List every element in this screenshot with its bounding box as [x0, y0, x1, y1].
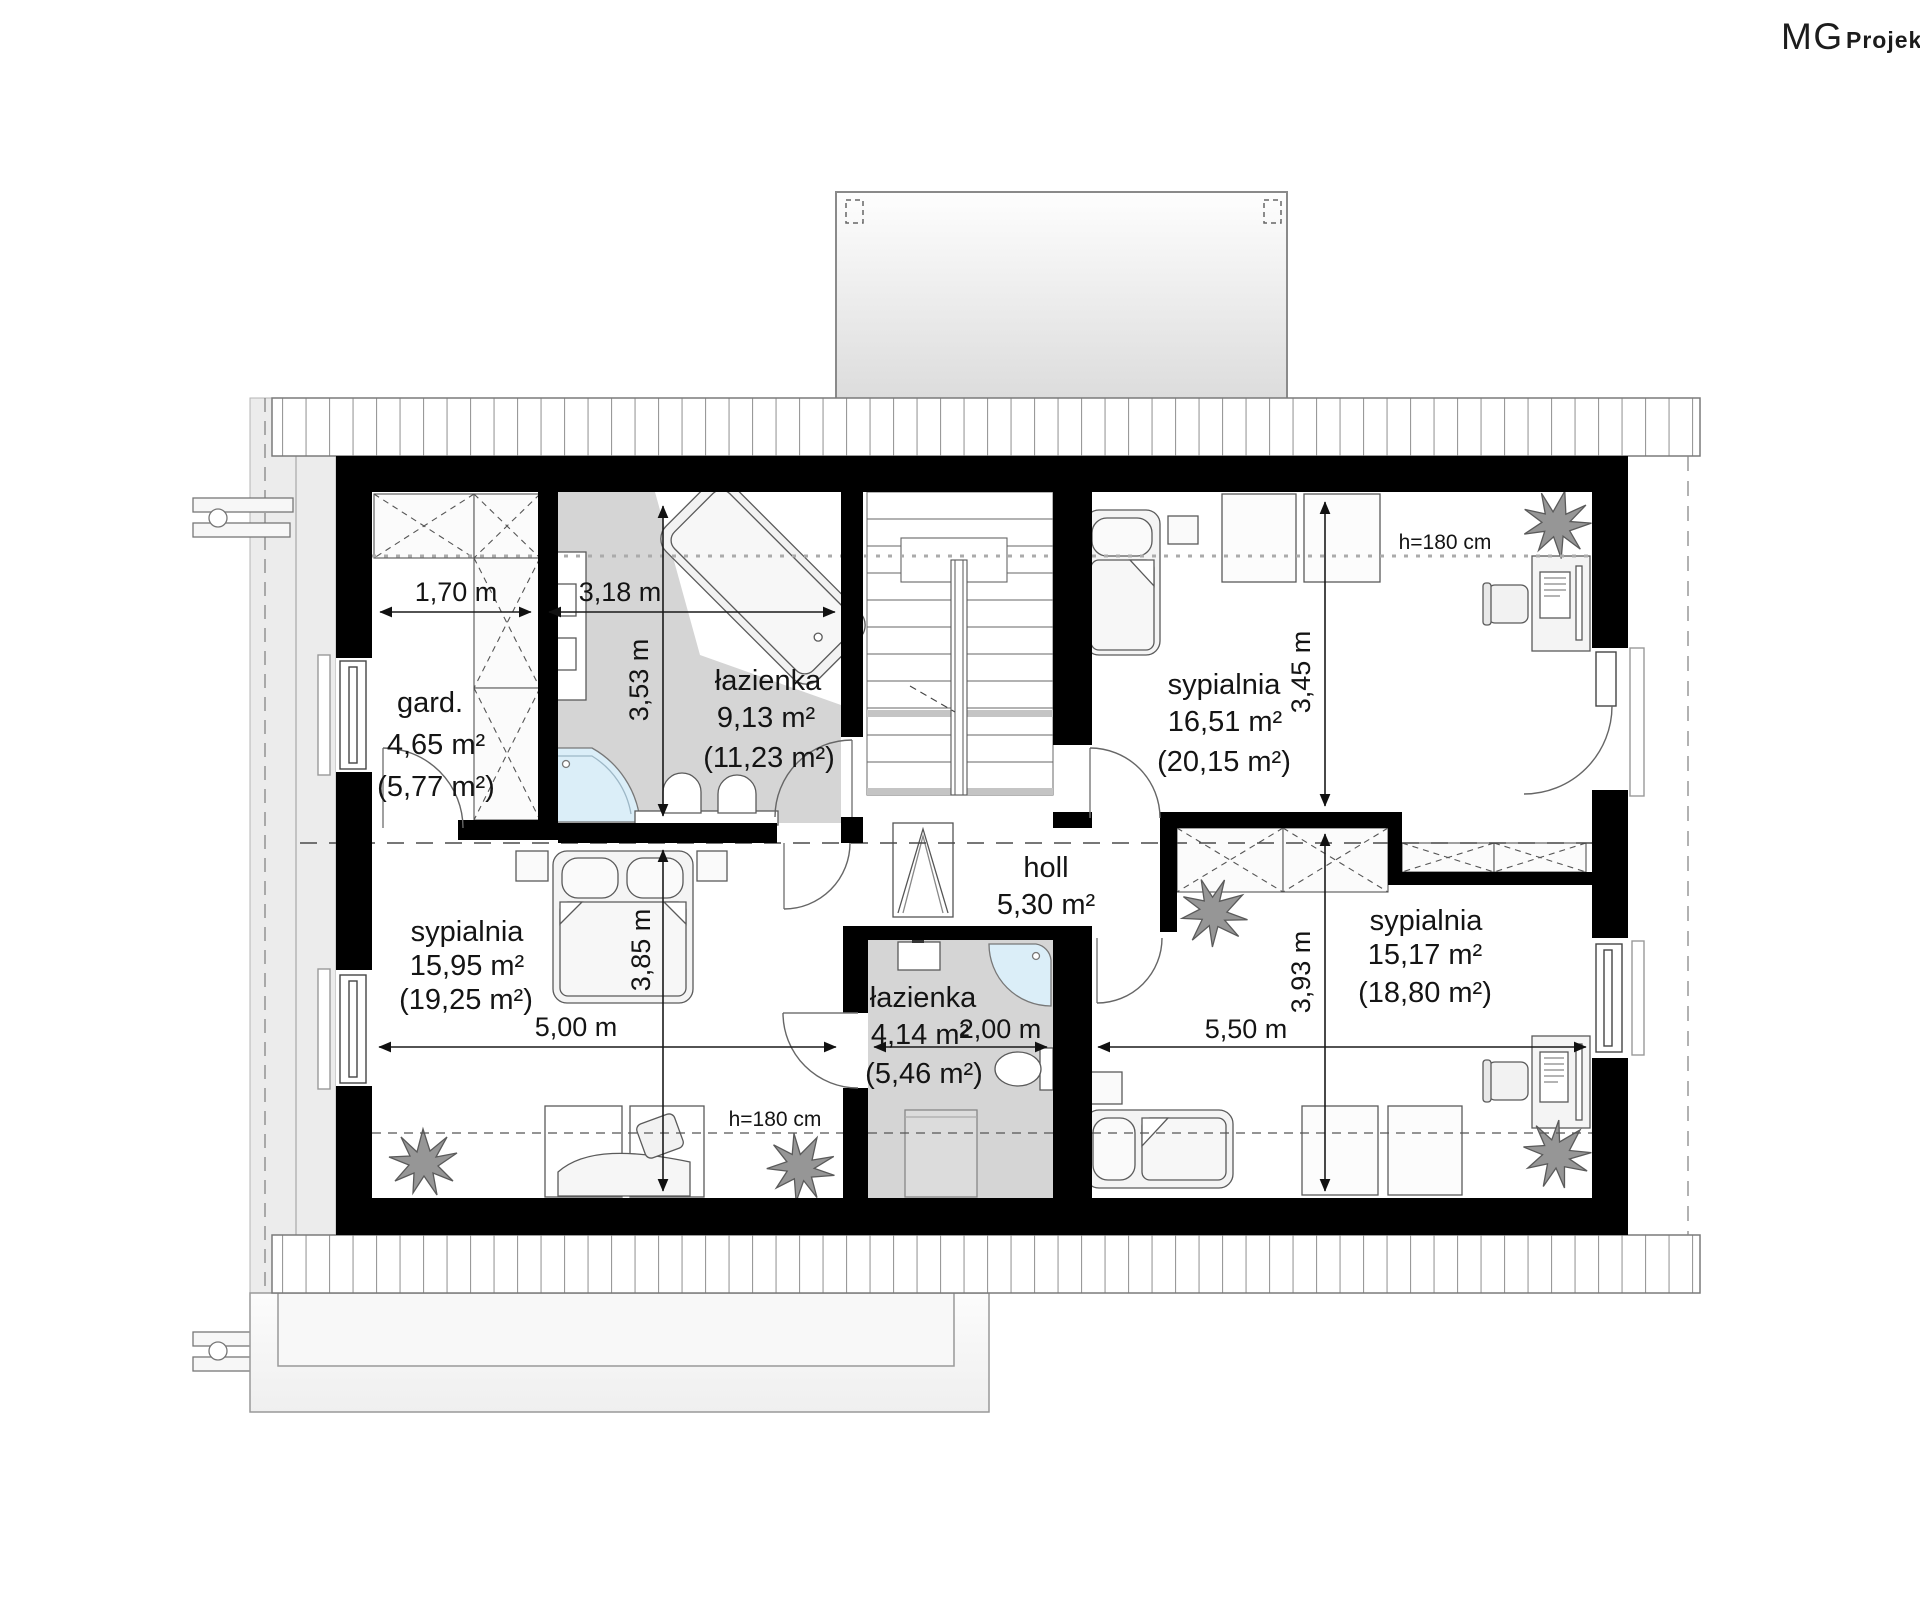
cabinet-icon: [1304, 494, 1380, 582]
dim-bed-bottom-right-height: 3,93 m: [1286, 931, 1316, 1014]
room-area-total-bed-left: (19,25 m²): [399, 984, 533, 1016]
roof-band-top: [272, 398, 1700, 456]
room-label-bed-top-right: sypialnia: [1168, 669, 1282, 701]
wardrobe-bedroom-icon: [1402, 843, 1586, 872]
dim-bath-top-height: 3,53 m: [624, 639, 654, 722]
desk-bottom-right-icon: [1532, 1036, 1590, 1128]
staircase: [867, 492, 1053, 795]
room-label-bed-bottom-right: sypialnia: [1370, 905, 1484, 937]
floor-plan-page: 1,70 m 3,18 m 3,53 m 3,45 m 3,85 m 3,93 …: [0, 0, 1920, 1624]
room-area-total-bath-top: (11,23 m²): [703, 742, 835, 774]
dresser-icon: [1302, 1106, 1378, 1195]
bidet-icon: [718, 775, 756, 813]
double-bed-icon: [553, 851, 693, 1003]
room-area-total-bed-top-right: (20,15 m²): [1157, 746, 1291, 778]
shower-tray-icon: [905, 1110, 977, 1197]
dim-bed-left-height: 3,85 m: [626, 909, 656, 992]
room-area-total-bath-bottom: (5,46 m²): [865, 1058, 983, 1090]
logo-mg-text: MG: [1781, 16, 1844, 57]
room-label-bath-bottom: łazienka: [870, 982, 977, 1014]
room-area-total-bed-bottom-right: (18,80 m²): [1358, 977, 1492, 1009]
room-area-bath-top: 9,13 m²: [717, 702, 816, 734]
chimney-block: [836, 192, 1287, 400]
room-area-gard: 4,65 m²: [387, 729, 486, 761]
knee-wall-label-bottom: h=180 cm: [729, 1108, 822, 1131]
bed-top-right-icon: [1085, 510, 1160, 655]
dim-bed-top-right-height: 3,45 m: [1286, 631, 1316, 714]
wardrobe-holl-icon: [1177, 828, 1388, 892]
window-icon: [1596, 941, 1644, 1055]
roof-band-bottom: [272, 1235, 1700, 1293]
nightstand-icon: [1088, 1072, 1122, 1104]
dim-bed-left-width: 5,00 m: [535, 1012, 618, 1042]
room-area-bath-bottom: 4,14 m²: [871, 1019, 970, 1051]
room-label-bath-top: łazienka: [715, 665, 822, 697]
logo-projekt-text: Projekt: [1846, 27, 1920, 53]
lower-roof-planes: [250, 1293, 989, 1412]
dresser-icon: [1388, 1106, 1462, 1195]
nightstand-icon: [1168, 516, 1198, 544]
dim-bath-top-width: 3,18 m: [579, 577, 662, 607]
room-area-holl: 5,30 m²: [997, 889, 1096, 921]
dim-gard-width: 1,70 m: [415, 577, 498, 607]
window-icon: [318, 655, 366, 775]
brand-logo: MG Projekt: [1781, 16, 1920, 57]
room-area-bed-bottom-right: 15,17 m²: [1368, 939, 1483, 971]
cabinet-icon: [1222, 494, 1296, 582]
knee-wall-label-top: h=180 cm: [1399, 531, 1492, 554]
window-icon: [318, 969, 366, 1089]
room-label-holl: holl: [1023, 852, 1068, 884]
chair-icon: [1483, 583, 1528, 625]
nightstand-icon: [516, 851, 548, 881]
dim-bed-bottom-right-width: 5,50 m: [1205, 1014, 1288, 1044]
room-area-bed-left: 15,95 m²: [410, 950, 525, 982]
nightstand-icon: [697, 851, 727, 881]
bed-bottom-right-icon: [1085, 1110, 1233, 1188]
attic-hatch-icon: [893, 823, 953, 917]
dim-bath-bottom-width: 2,00 m: [959, 1014, 1042, 1044]
desk-top-right-icon: [1532, 556, 1590, 651]
room-label-gard: gard.: [397, 687, 463, 719]
room-area-bed-top-right: 16,51 m²: [1168, 706, 1283, 738]
chair-icon: [1483, 1060, 1528, 1102]
floor-plan-drawing: 1,70 m 3,18 m 3,53 m 3,45 m 3,85 m 3,93 …: [0, 0, 1920, 1624]
room-area-total-gard: (5,77 m²): [377, 771, 495, 803]
toilet-top-icon: [663, 773, 701, 813]
room-label-bed-left: sypialnia: [411, 916, 525, 948]
